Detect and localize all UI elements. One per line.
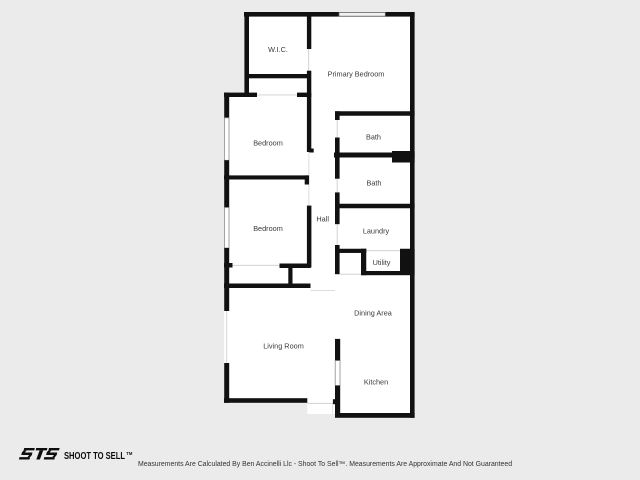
svg-text:Bedroom: Bedroom (253, 139, 283, 148)
svg-text:Bath: Bath (366, 133, 381, 142)
svg-text:Bedroom: Bedroom (253, 224, 283, 233)
svg-text:Laundry: Laundry (363, 227, 390, 236)
svg-text:TM: TM (126, 451, 133, 456)
svg-text:Utility: Utility (373, 258, 391, 267)
svg-text:Living Room: Living Room (263, 342, 304, 351)
svg-text:Dining Area: Dining Area (354, 309, 393, 318)
svg-text:W.I.C.: W.I.C. (268, 45, 288, 54)
svg-text:Bath: Bath (366, 179, 381, 188)
svg-text:Measurements Are Calculated By: Measurements Are Calculated By Ben Accin… (138, 461, 512, 468)
svg-text:Primary Bedroom: Primary Bedroom (328, 70, 385, 79)
svg-text:Kitchen: Kitchen (364, 378, 388, 387)
svg-text:Hall: Hall (316, 215, 329, 224)
svg-text:SHOOT TO SELL: SHOOT TO SELL (64, 451, 125, 462)
